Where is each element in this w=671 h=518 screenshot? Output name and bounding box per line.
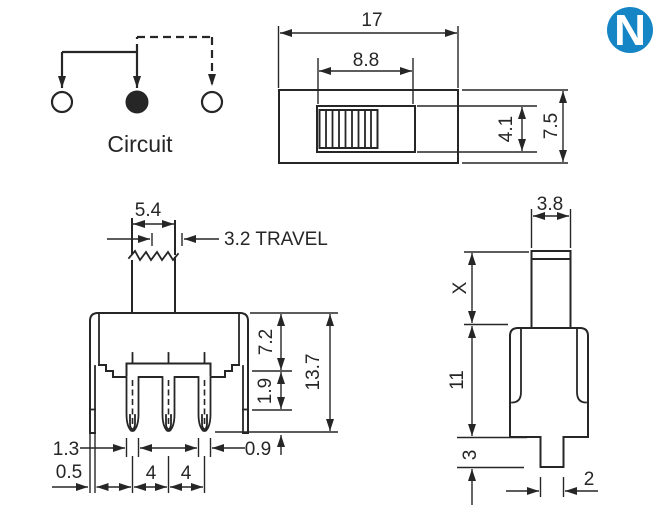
terminal-pin-3	[199, 353, 211, 431]
top-view-knob-serrations	[326, 111, 371, 147]
drawing-canvas: Circuit N 17 8.8 4	[0, 0, 671, 518]
side-view: 3.8 X 11 3 2	[447, 194, 598, 505]
dim-label-4a: 4	[146, 463, 157, 484]
dim-label-3: 3	[460, 450, 481, 461]
circuit-schematic: Circuit	[52, 37, 222, 157]
front-view: 5.4 3.2 TRAVEL	[52, 200, 338, 493]
dim-label-7-2: 7.2	[256, 329, 277, 355]
side-bracket-right	[577, 329, 586, 403]
switch-drawing-page: Circuit N 17 8.8 4	[0, 0, 671, 518]
base-profile	[99, 365, 239, 377]
dim-label-5-4: 5.4	[135, 200, 162, 221]
dim-label-0-5: 0.5	[56, 462, 82, 483]
side-knob-outline	[532, 251, 571, 328]
dim-label-x: X	[450, 281, 471, 294]
dim-label-4b: 4	[181, 463, 192, 484]
dim-label-17: 17	[361, 10, 382, 31]
dim-label-travel: 3.2 TRAVEL	[224, 229, 328, 250]
terminal-pin-1	[127, 353, 139, 431]
dim-label-2: 2	[584, 469, 595, 490]
dim-label-13-7: 13.7	[303, 354, 324, 391]
terminal-pin-2	[163, 353, 175, 431]
dim-label-1-3: 1.3	[53, 439, 79, 460]
dim-label-1-9: 1.9	[255, 378, 276, 404]
side-bracket-left	[512, 329, 521, 403]
top-view-knob-outline	[320, 110, 378, 148]
dim-label-8-8: 8.8	[353, 50, 379, 71]
dim-label-0-9: 0.9	[245, 439, 271, 460]
dim-label-11: 11	[447, 370, 468, 390]
logo-letter: N	[614, 6, 646, 55]
brand-logo: N	[607, 6, 653, 55]
circuit-label: Circuit	[107, 131, 173, 157]
terminal-node-left	[52, 92, 72, 112]
dim-label-3-8: 3.8	[537, 194, 563, 215]
dim-label-4-1: 4.1	[496, 116, 517, 142]
dim-label-7-5: 7.5	[541, 113, 562, 139]
side-terminal	[541, 437, 564, 467]
top-view: 17 8.8 4.1 7.5	[279, 10, 569, 163]
terminal-node-right	[202, 92, 222, 112]
break-zigzag	[129, 251, 178, 260]
terminal-node-common	[127, 92, 148, 113]
